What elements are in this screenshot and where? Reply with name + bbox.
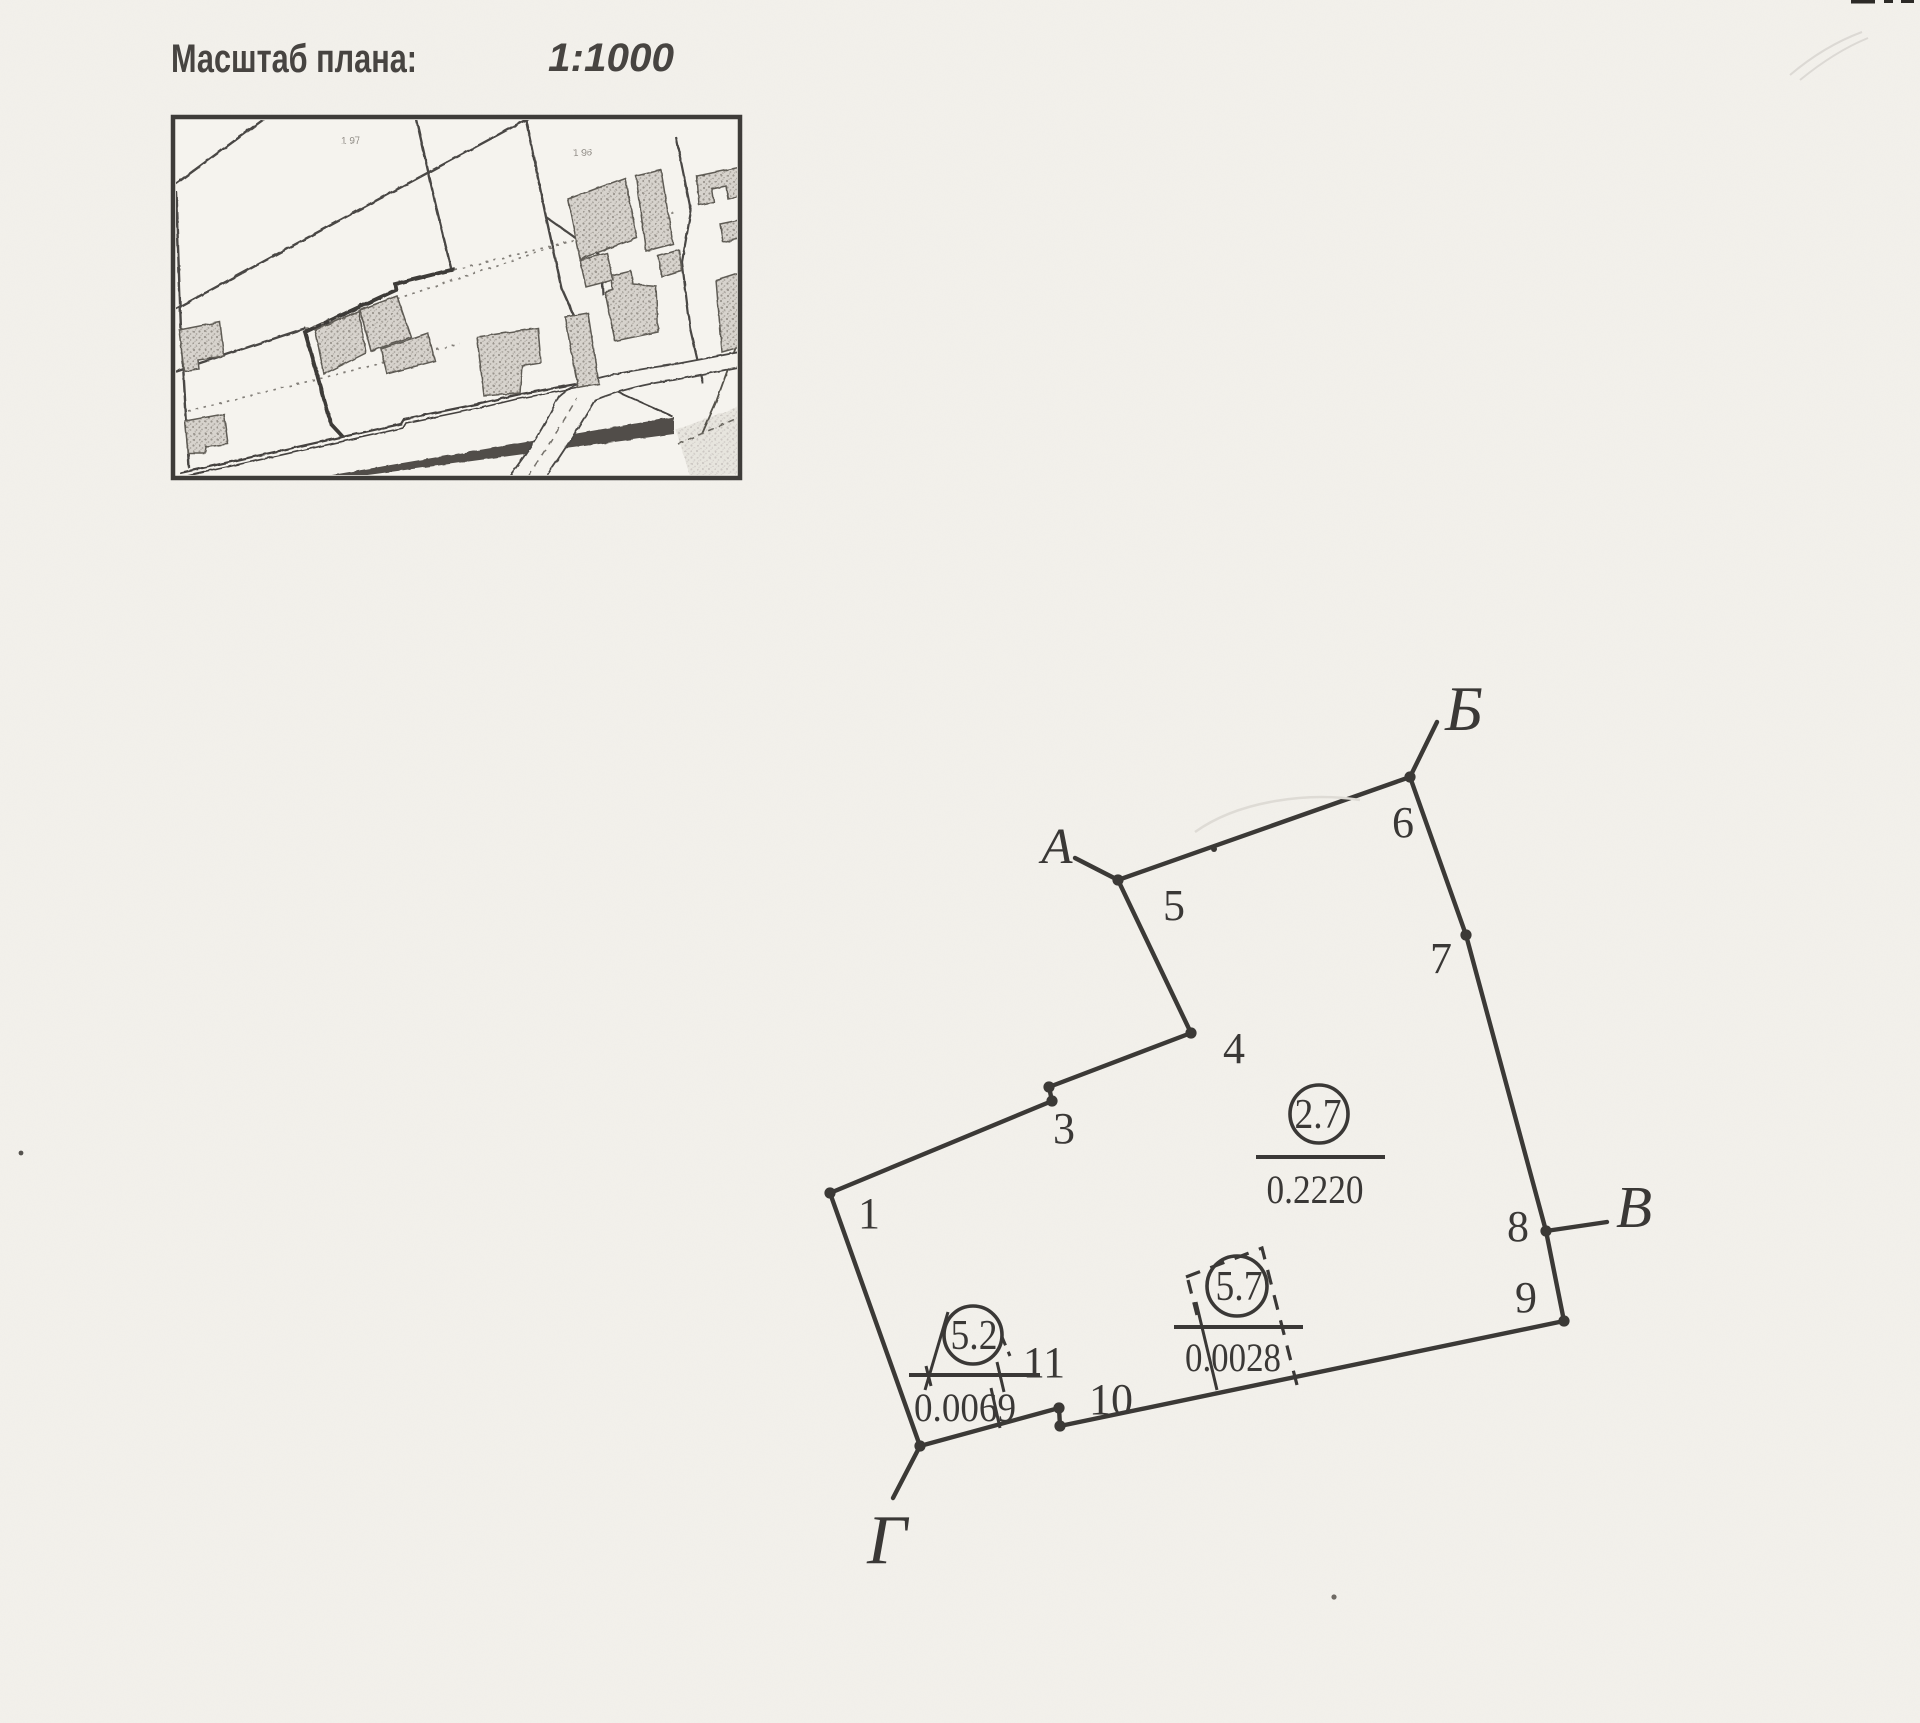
svg-text:0.0069: 0.0069 (914, 1385, 1016, 1430)
svg-text:3: 3 (1053, 1104, 1075, 1153)
svg-text:5.7: 5.7 (1216, 1264, 1263, 1310)
svg-text:6: 6 (1392, 798, 1414, 847)
svg-text:Г: Г (866, 1502, 910, 1579)
svg-text:0.0028: 0.0028 (1185, 1335, 1281, 1380)
svg-text:1 96: 1 96 (573, 148, 593, 159)
svg-text:5.2: 5.2 (951, 1313, 998, 1359)
svg-text:2.7: 2.7 (1295, 1092, 1342, 1138)
svg-text:Масштаб плана:: Масштаб плана: (171, 37, 417, 81)
svg-text:Б: Б (1444, 673, 1483, 744)
svg-text:5: 5 (1163, 881, 1185, 930)
svg-text:1 97: 1 97 (341, 136, 361, 147)
svg-text:8: 8 (1507, 1202, 1529, 1251)
svg-text:4: 4 (1223, 1024, 1245, 1073)
svg-text:А: А (1038, 819, 1073, 875)
svg-text:11: 11 (1023, 1338, 1065, 1387)
svg-text:7: 7 (1430, 934, 1452, 983)
svg-text:10: 10 (1089, 1375, 1133, 1424)
svg-text:9: 9 (1515, 1273, 1537, 1322)
svg-text:1:1000: 1:1000 (548, 36, 674, 80)
svg-text:1: 1 (858, 1189, 880, 1238)
svg-text:0.2220: 0.2220 (1267, 1167, 1364, 1212)
svg-text:В: В (1616, 1174, 1652, 1240)
